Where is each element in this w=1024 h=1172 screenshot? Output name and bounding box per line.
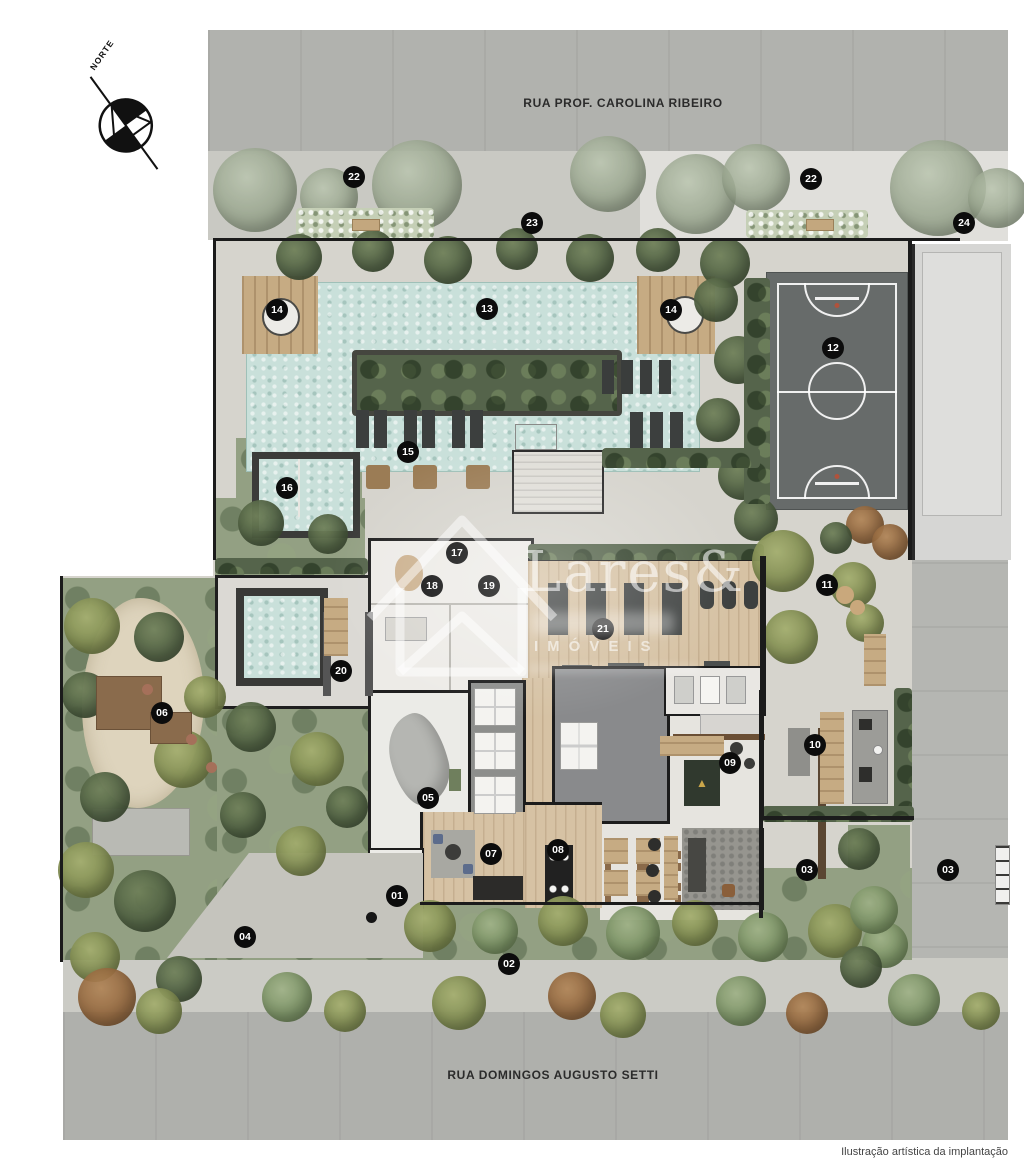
court-right-wall bbox=[908, 240, 912, 560]
tree-canopy bbox=[78, 968, 136, 1026]
spa-table bbox=[324, 598, 348, 656]
tree-canopy bbox=[968, 168, 1024, 228]
exercise-bike bbox=[722, 581, 736, 609]
tree-canopy bbox=[213, 148, 297, 232]
kids-pool-divider bbox=[298, 459, 300, 517]
pool-lounger bbox=[640, 360, 652, 394]
plan-marker-10: 10 bbox=[804, 734, 826, 756]
tree-canopy bbox=[496, 228, 538, 270]
treadmill bbox=[548, 583, 568, 635]
exercise-bike bbox=[700, 581, 714, 609]
sofa bbox=[688, 838, 706, 892]
tree-canopy bbox=[850, 886, 898, 934]
cushion bbox=[463, 864, 473, 874]
plan-marker-19: 19 bbox=[478, 575, 500, 597]
tree-canopy bbox=[672, 900, 718, 946]
tree-canopy bbox=[324, 990, 366, 1032]
compass-rose bbox=[74, 58, 174, 178]
planting bbox=[806, 219, 834, 231]
bbq-counter bbox=[820, 712, 844, 804]
tree-canopy bbox=[276, 826, 326, 876]
lounge bbox=[682, 828, 764, 910]
tree-canopy bbox=[326, 786, 368, 828]
elevator-cab bbox=[474, 688, 516, 726]
tree-canopy bbox=[820, 522, 852, 554]
plan-marker-07: 07 bbox=[480, 843, 502, 865]
planting bbox=[186, 734, 197, 745]
tree-canopy bbox=[352, 230, 394, 272]
tree-canopy bbox=[716, 976, 766, 1026]
tree-canopy bbox=[404, 900, 456, 952]
planting bbox=[850, 600, 865, 615]
plan-marker-13: 13 bbox=[476, 298, 498, 320]
plan-marker-15: 15 bbox=[397, 441, 419, 463]
lobby bbox=[420, 812, 528, 905]
tree-canopy bbox=[764, 610, 818, 664]
site-plan-illustration: RUA PROF. CAROLINA RIBEIRO RUA DOMINGOS … bbox=[0, 0, 1024, 1172]
deck-lounger bbox=[374, 410, 387, 448]
plan-marker-04: 04 bbox=[234, 926, 256, 948]
tree-canopy bbox=[722, 144, 790, 212]
dining-right-wall bbox=[759, 690, 763, 918]
round-table bbox=[646, 864, 659, 877]
tree-canopy bbox=[136, 988, 182, 1034]
tree-canopy bbox=[220, 792, 266, 838]
court-spot-top bbox=[835, 303, 840, 308]
pool-island-planter bbox=[352, 350, 622, 416]
deck-lounger bbox=[630, 412, 643, 450]
garden-left-wall bbox=[60, 576, 63, 962]
building-bottom-wall bbox=[420, 902, 762, 905]
tree-canopy bbox=[238, 500, 284, 546]
site-top-wall bbox=[213, 238, 960, 241]
plan-marker-17: 17 bbox=[446, 542, 468, 564]
deck-lounger bbox=[422, 410, 435, 448]
tree-canopy bbox=[290, 732, 344, 786]
tree-canopy bbox=[548, 972, 596, 1020]
tree-canopy bbox=[64, 598, 120, 654]
room-furniture bbox=[395, 555, 423, 591]
stairs bbox=[512, 450, 604, 514]
deck-lounger bbox=[670, 412, 683, 450]
room-counter bbox=[385, 617, 427, 641]
appliance bbox=[674, 676, 694, 704]
street-right bbox=[912, 560, 1008, 1012]
planting bbox=[602, 448, 760, 468]
tree-canopy bbox=[424, 236, 472, 284]
tree-canopy bbox=[308, 514, 348, 554]
tree-canopy bbox=[888, 974, 940, 1026]
tree-canopy bbox=[134, 612, 184, 662]
reflecting-pool bbox=[515, 424, 557, 450]
court-goal-top bbox=[815, 297, 859, 300]
sports-court bbox=[766, 272, 908, 510]
plan-marker-01: 01 bbox=[386, 885, 408, 907]
paving-dot bbox=[366, 912, 377, 923]
tree-canopy bbox=[80, 772, 130, 822]
tree-canopy bbox=[786, 992, 828, 1034]
dining-table bbox=[604, 870, 628, 896]
sink bbox=[873, 745, 883, 755]
tree-canopy bbox=[58, 842, 114, 898]
kitchen-rooms bbox=[664, 666, 766, 716]
plan-marker-24: 24 bbox=[953, 212, 975, 234]
planter-green bbox=[449, 769, 461, 791]
plan-marker-18: 18 bbox=[421, 575, 443, 597]
room-divider-h bbox=[371, 603, 531, 605]
street-top bbox=[208, 30, 1008, 151]
tree-canopy bbox=[570, 136, 646, 212]
plan-marker-22: 22 bbox=[800, 168, 822, 190]
plan-marker-21: 21 bbox=[592, 618, 614, 640]
pool-lounger bbox=[659, 360, 671, 394]
court-goal-bottom bbox=[815, 482, 859, 485]
elevator-cab bbox=[474, 732, 516, 770]
exercise-bike bbox=[744, 581, 758, 609]
treadmill bbox=[662, 583, 682, 635]
spa-pool bbox=[236, 588, 328, 686]
tree-canopy bbox=[114, 870, 176, 932]
site-left-wall bbox=[213, 238, 216, 560]
plan-marker-03: 03 bbox=[796, 859, 818, 881]
plan-marker-14: 14 bbox=[266, 299, 288, 321]
deck-lounger bbox=[470, 410, 483, 448]
deck-lounger bbox=[452, 410, 465, 448]
plan-marker-14: 14 bbox=[660, 299, 682, 321]
coffee-table bbox=[445, 844, 461, 860]
gym-hedge bbox=[528, 544, 764, 560]
street-bottom-label: RUA DOMINGOS AUGUSTO SETTI bbox=[393, 1068, 713, 1082]
tree-canopy bbox=[872, 524, 908, 560]
tree-canopy bbox=[226, 702, 276, 752]
tree-canopy bbox=[738, 912, 788, 962]
planting bbox=[744, 278, 770, 504]
appliance bbox=[700, 676, 720, 704]
compass-icon bbox=[74, 58, 174, 178]
plan-marker-12: 12 bbox=[822, 337, 844, 359]
neighbor-roof-panel bbox=[922, 252, 1002, 516]
tree-canopy bbox=[432, 976, 486, 1030]
plan-marker-08: 08 bbox=[547, 839, 569, 861]
planting bbox=[894, 688, 912, 812]
reception-desk bbox=[473, 876, 523, 900]
plan-marker-03: 03 bbox=[937, 859, 959, 881]
court-center-circle bbox=[808, 362, 866, 420]
planting bbox=[352, 219, 380, 231]
grill bbox=[859, 719, 872, 730]
terrace-table bbox=[366, 465, 390, 489]
tree-canopy bbox=[566, 234, 614, 282]
planting bbox=[142, 684, 153, 695]
bar-counter bbox=[664, 836, 678, 900]
cushion bbox=[433, 834, 443, 844]
art-rug: ▲ bbox=[684, 760, 720, 806]
plan-marker-06: 06 bbox=[151, 702, 173, 724]
deck-lounger bbox=[356, 410, 369, 448]
tree-canopy bbox=[838, 828, 880, 870]
tree-canopy bbox=[694, 278, 738, 322]
tree-canopy bbox=[840, 946, 882, 988]
kitchen-island bbox=[660, 736, 724, 756]
plan-marker-09: 09 bbox=[719, 752, 741, 774]
treadmill bbox=[624, 583, 644, 635]
grill bbox=[859, 767, 872, 782]
court-spot-bottom bbox=[835, 474, 840, 479]
site-cutout bbox=[60, 240, 213, 576]
round-table bbox=[648, 838, 661, 851]
tree-canopy bbox=[696, 398, 740, 442]
corridor bbox=[522, 678, 556, 820]
spa-room-hedge bbox=[215, 558, 368, 574]
plan-marker-23: 23 bbox=[521, 212, 543, 234]
pool-lounger bbox=[621, 360, 633, 394]
tree-canopy bbox=[262, 972, 312, 1022]
planting bbox=[206, 762, 217, 773]
armchair bbox=[722, 884, 735, 897]
plan-marker-22: 22 bbox=[343, 166, 365, 188]
terrace-table bbox=[413, 465, 437, 489]
plan-marker-02: 02 bbox=[498, 953, 520, 975]
terrace-bottom-wall bbox=[760, 816, 914, 820]
tree-canopy bbox=[606, 906, 660, 960]
pool-lounger bbox=[602, 360, 614, 394]
dining-table bbox=[604, 838, 628, 864]
garden-bench bbox=[864, 634, 886, 686]
terrace-table bbox=[466, 465, 490, 489]
pouf bbox=[744, 758, 755, 769]
plan-marker-11: 11 bbox=[816, 574, 838, 596]
plan-marker-16: 16 bbox=[276, 477, 298, 499]
skylight bbox=[560, 722, 598, 770]
tree-canopy bbox=[600, 992, 646, 1038]
deck-lounger bbox=[650, 412, 663, 450]
caption: Ilustração artística da implantação bbox=[841, 1146, 1008, 1158]
gate bbox=[995, 845, 1010, 905]
grill-station bbox=[852, 710, 888, 804]
tree-canopy bbox=[962, 992, 1000, 1030]
plan-marker-20: 20 bbox=[330, 660, 352, 682]
tree-canopy bbox=[472, 908, 518, 954]
tree-canopy bbox=[636, 228, 680, 272]
street-top-label: RUA PROF. CAROLINA RIBEIRO bbox=[408, 96, 838, 110]
plan-marker-05: 05 bbox=[417, 787, 439, 809]
elevator-cab bbox=[474, 776, 516, 814]
appliance bbox=[726, 676, 746, 704]
